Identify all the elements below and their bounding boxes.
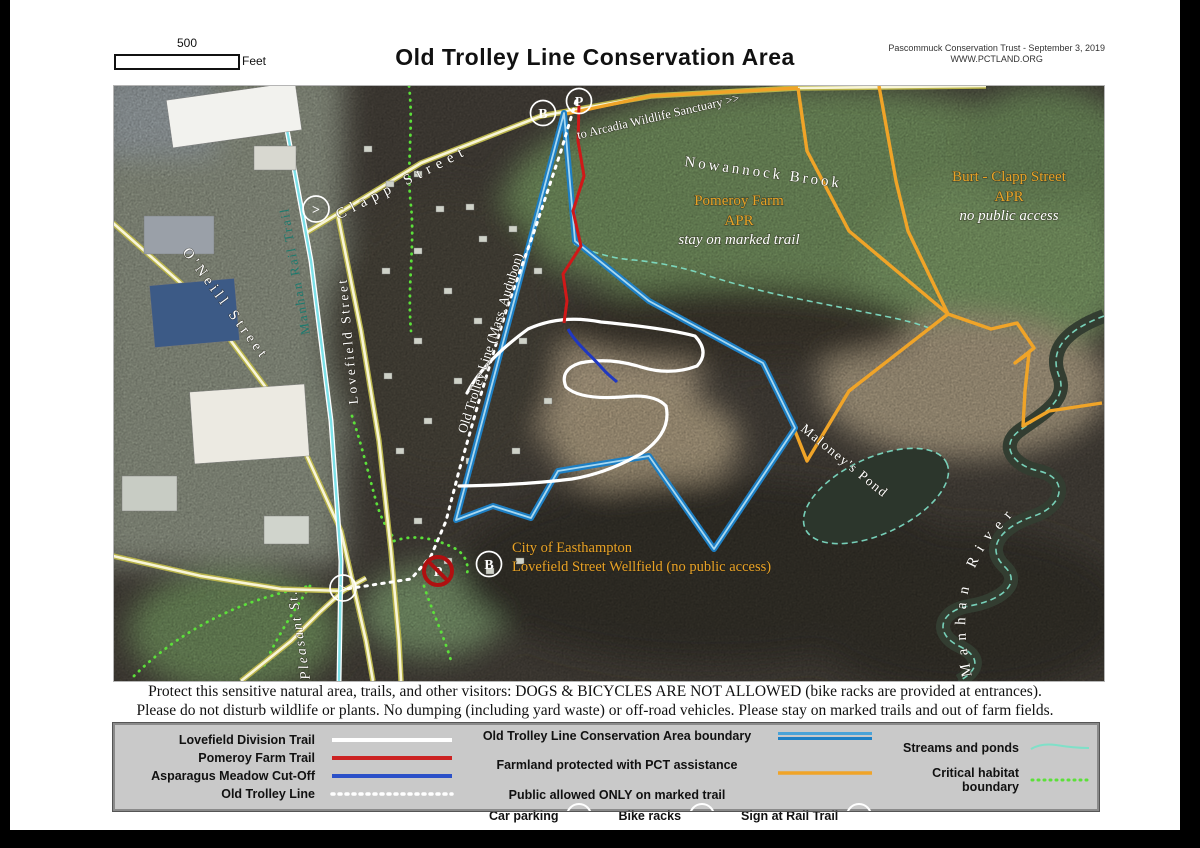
- bottom-black-band: [0, 830, 1200, 848]
- legend-row-markers: Car parking P Bike racks B Sign at Rail …: [481, 803, 887, 829]
- legend-right-column: Streams and ponds Critical habitat bound…: [887, 725, 1093, 809]
- rail-trail-sign-marker-top-glyph: >: [312, 203, 320, 218]
- legend-row-streams: Streams and ponds: [887, 740, 1093, 756]
- legend-row-boundary: Old Trolley Line Conservation Area bound…: [467, 729, 887, 743]
- right-black-band: [1180, 0, 1200, 848]
- map-sheet: 500 Feet Old Trolley Line Conservation A…: [10, 0, 1180, 830]
- legend-bike-marker: B: [689, 803, 715, 829]
- legend-label-boundary: Old Trolley Line Conservation Area bound…: [467, 729, 767, 743]
- left-black-band: [0, 0, 10, 848]
- label-burt-note: no public access: [959, 208, 1058, 224]
- legend-label-car-parking: Car parking: [489, 809, 558, 823]
- legend-label-farmland-line1: Farmland protected with PCT assistance: [496, 758, 737, 772]
- label-city-line2: Lovefield Street Wellfield (no public ac…: [512, 559, 771, 575]
- credit-line2: WWW.PCTLAND.ORG: [888, 54, 1105, 65]
- rail-trail-sign-marker-bottom-glyph: >: [339, 582, 347, 597]
- credit-line1: Pascommuck Conservation Trust - Septembe…: [888, 43, 1105, 54]
- legend-label-farmland-line2: Public allowed ONLY on marked trail: [509, 788, 726, 802]
- legend-row-pomeroy-trail: Pomeroy Farm Trail: [115, 751, 467, 765]
- legend-swatch-trolley-line: [329, 788, 455, 800]
- map-area: Clapp Street O'Neill Street Manhan Rail …: [113, 85, 1105, 682]
- legend-bike-marker-letter: B: [698, 808, 707, 824]
- bike-rack-marker-bottom-letter: B: [484, 558, 493, 573]
- legend-bike-racks-group: Bike racks B: [618, 803, 715, 829]
- label-pomeroy-farm: Pomeroy Farm: [694, 193, 784, 209]
- legend-car-parking-group: Car parking P: [489, 803, 592, 829]
- legend-label-streams: Streams and ponds: [887, 741, 1019, 755]
- legend-label-sign-rail: Sign at Rail Trail: [741, 809, 838, 823]
- legend-sign-rail-group: Sign at Rail Trail >: [741, 803, 872, 829]
- legend-swatch-streams: [1029, 740, 1091, 756]
- legend-label-bike-racks: Bike racks: [618, 809, 681, 823]
- label-pomeroy-apr: APR: [724, 213, 753, 229]
- legend-label-trolley-line: Old Trolley Line: [115, 787, 315, 801]
- parking-marker-top-letter: P: [575, 95, 584, 110]
- legend-middle-column: Old Trolley Line Conservation Area bound…: [467, 725, 887, 809]
- legend-sign-marker-glyph: >: [856, 808, 863, 824]
- label-burt-clapp: Burt - Clapp Street: [952, 169, 1067, 185]
- legend-parking-marker: P: [566, 803, 592, 829]
- legend: Lovefield Division Trail Pomeroy Farm Tr…: [113, 723, 1099, 811]
- map-aerial: Clapp Street O'Neill Street Manhan Rail …: [114, 86, 1104, 681]
- legend-swatch-farmland: [775, 767, 875, 779]
- notice-line1: Protect this sensitive natural area, tra…: [10, 683, 1180, 701]
- legend-label-habitat: Critical habitat boundary: [887, 766, 1019, 794]
- label-pomeroy-note: stay on marked trail: [678, 232, 799, 248]
- legend-row-cutoff-trail: Asparagus Meadow Cut-Off: [115, 769, 467, 783]
- page: 500 Feet Old Trolley Line Conservation A…: [0, 0, 1200, 848]
- legend-swatch-boundary: [775, 729, 875, 743]
- legend-label-cutoff-trail: Asparagus Meadow Cut-Off: [115, 769, 315, 783]
- legend-row-trolley-line: Old Trolley Line: [115, 787, 467, 801]
- legend-trails-column: Lovefield Division Trail Pomeroy Farm Tr…: [115, 725, 467, 809]
- label-city-line1: City of Easthampton: [512, 540, 633, 556]
- legend-label-pomeroy-trail: Pomeroy Farm Trail: [115, 751, 315, 765]
- legend-swatch-habitat: [1029, 774, 1091, 786]
- legend-swatch-lovefield-trail: [329, 734, 455, 746]
- legend-row-lovefield-trail: Lovefield Division Trail: [115, 733, 467, 747]
- legend-row-habitat: Critical habitat boundary: [887, 766, 1093, 794]
- notice-line2: Please do not disturb wildlife or plants…: [10, 702, 1180, 720]
- legend-parking-marker-letter: P: [575, 808, 583, 824]
- legend-sign-marker: >: [846, 803, 872, 829]
- label-burt-apr: APR: [994, 189, 1023, 205]
- legend-row-farmland: Farmland protected with PCT assistance P…: [467, 743, 887, 803]
- legend-swatch-cutoff-trail: [329, 770, 455, 782]
- bike-rack-marker-top-letter: B: [538, 107, 547, 122]
- legend-label-lovefield-trail: Lovefield Division Trail: [115, 733, 315, 747]
- legend-swatch-pomeroy-trail: [329, 752, 455, 764]
- legend-label-farmland: Farmland protected with PCT assistance P…: [467, 743, 767, 803]
- credit-block: Pascommuck Conservation Trust - Septembe…: [888, 43, 1105, 65]
